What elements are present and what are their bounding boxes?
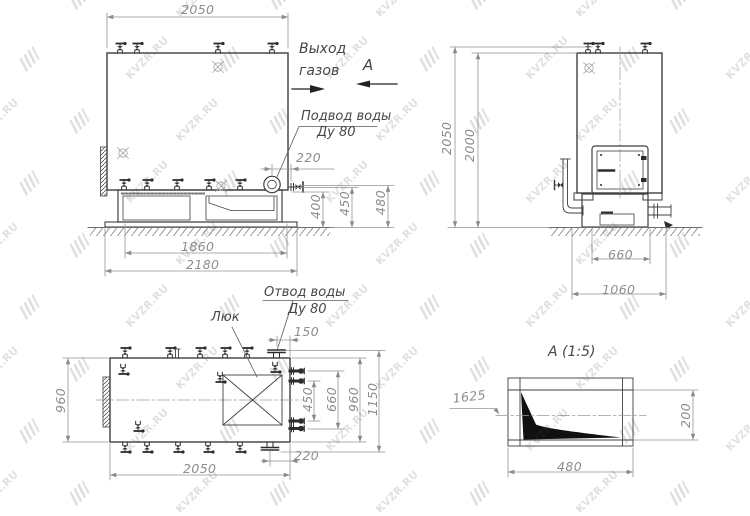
dim-top-body-width-left: 960 [55, 388, 68, 413]
hatch-leader [232, 327, 257, 377]
front-base [118, 190, 282, 222]
label-section-letter: А [363, 58, 373, 73]
hatch-opening [223, 375, 282, 425]
top-left-flange-strip [103, 377, 110, 427]
dim-front-base-outer: 2180 [186, 259, 219, 272]
dim-front-height-480: 480 [375, 190, 388, 215]
label-water-drain-1: Отвод воды [264, 286, 345, 299]
dim-front-supply-offset: 220 [296, 152, 321, 165]
dim-front-height-450: 450 [339, 191, 352, 216]
dim-top-overall-width: 1150 [367, 383, 380, 416]
dim-top-body-length: 2050 [183, 463, 216, 476]
dim-side-shell-height: 2000 [464, 129, 477, 162]
front-left-flange-strip [101, 147, 108, 196]
label-water-supply-1: Подвод воды [301, 110, 391, 123]
dim-front-height-400: 400 [310, 194, 323, 219]
side-base [574, 193, 662, 227]
front-shell [107, 53, 288, 190]
dim-section-height: 200 [680, 403, 693, 428]
dim-side-overall-height: 2050 [441, 122, 454, 155]
gas-flow-arrow [292, 85, 325, 93]
label-gas-outlet-1: Выход [299, 42, 346, 56]
side-view [448, 42, 702, 299]
dim-section-width: 480 [557, 461, 582, 474]
dim-top-drain-offset-bottom: 220 [294, 450, 319, 463]
dim-side-base-width: 660 [608, 249, 633, 262]
boiler-drawing [0, 0, 750, 500]
dim-top-body-width-right: 960 [348, 387, 361, 412]
drawing-canvas: { "watermark": { "text": "KVZR.RU" }, "f… [0, 0, 750, 500]
dim-side-base-overall: 1060 [602, 284, 635, 297]
dim-front-base-inner: 1860 [181, 241, 214, 254]
section-title: А (1:5) [548, 345, 595, 359]
water-drain-flange [268, 350, 285, 358]
label-water-drain-2: Ду 80 [288, 303, 327, 316]
front-view [88, 13, 397, 276]
section-a-arrow [356, 81, 397, 88]
dim-front-overall-width: 2050 [181, 4, 214, 17]
water-supply-flange [264, 176, 280, 192]
side-shell [577, 53, 662, 193]
dim-top-span-660: 660 [326, 387, 339, 412]
label-water-supply-2: Ду 80 [317, 126, 356, 139]
front-right-valve [288, 182, 303, 192]
label-hatch: Люк [211, 311, 240, 324]
side-dimensions [448, 47, 666, 299]
dim-top-drain-offset-top: 150 [294, 326, 319, 339]
side-left-pipe [555, 159, 584, 215]
label-gas-outlet-2: газов [299, 64, 339, 78]
dim-top-span-450: 450 [302, 387, 315, 412]
side-right-pipe [648, 204, 673, 229]
